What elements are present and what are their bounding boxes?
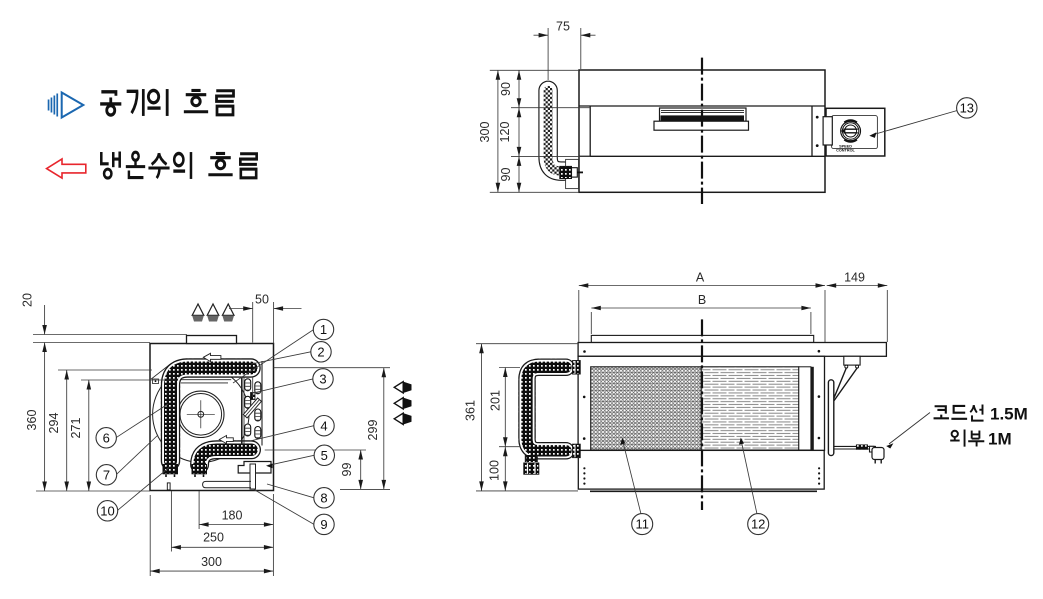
svg-text:361: 361 [464,400,478,421]
svg-text:149: 149 [844,271,865,285]
svg-text:6: 6 [103,430,110,445]
svg-text:300: 300 [201,555,222,569]
svg-text:90: 90 [499,168,513,182]
svg-text:99: 99 [340,463,354,477]
svg-text:10: 10 [100,503,114,518]
svg-text:1.5M: 1.5M [990,405,1028,424]
svg-text:50: 50 [255,293,269,307]
svg-text:294: 294 [47,413,61,434]
svg-text:8: 8 [320,490,327,505]
svg-text:A: A [696,271,705,285]
svg-text:100: 100 [488,460,502,481]
svg-text:250: 250 [203,531,224,545]
svg-text:299: 299 [366,420,380,441]
svg-text:75: 75 [556,20,570,34]
svg-text:9: 9 [320,517,327,532]
svg-text:2: 2 [317,344,324,359]
svg-text:13: 13 [960,101,974,116]
svg-text:180: 180 [222,509,243,523]
svg-text:B: B [698,293,706,307]
svg-text:120: 120 [498,122,512,143]
svg-text:20: 20 [21,293,35,307]
svg-text:11: 11 [635,517,649,532]
svg-text:CONTROL: CONTROL [836,149,855,153]
svg-text:271: 271 [69,418,83,439]
svg-text:300: 300 [478,122,492,143]
svg-text:1M: 1M [988,430,1012,449]
svg-text:3: 3 [319,372,326,387]
svg-text:360: 360 [25,410,39,431]
svg-text:201: 201 [489,390,503,411]
svg-text:4: 4 [320,418,327,433]
svg-text:12: 12 [751,517,765,532]
svg-text:7: 7 [103,467,110,482]
svg-text:5: 5 [321,448,328,463]
svg-text:90: 90 [499,82,513,96]
svg-text:1: 1 [320,322,327,337]
